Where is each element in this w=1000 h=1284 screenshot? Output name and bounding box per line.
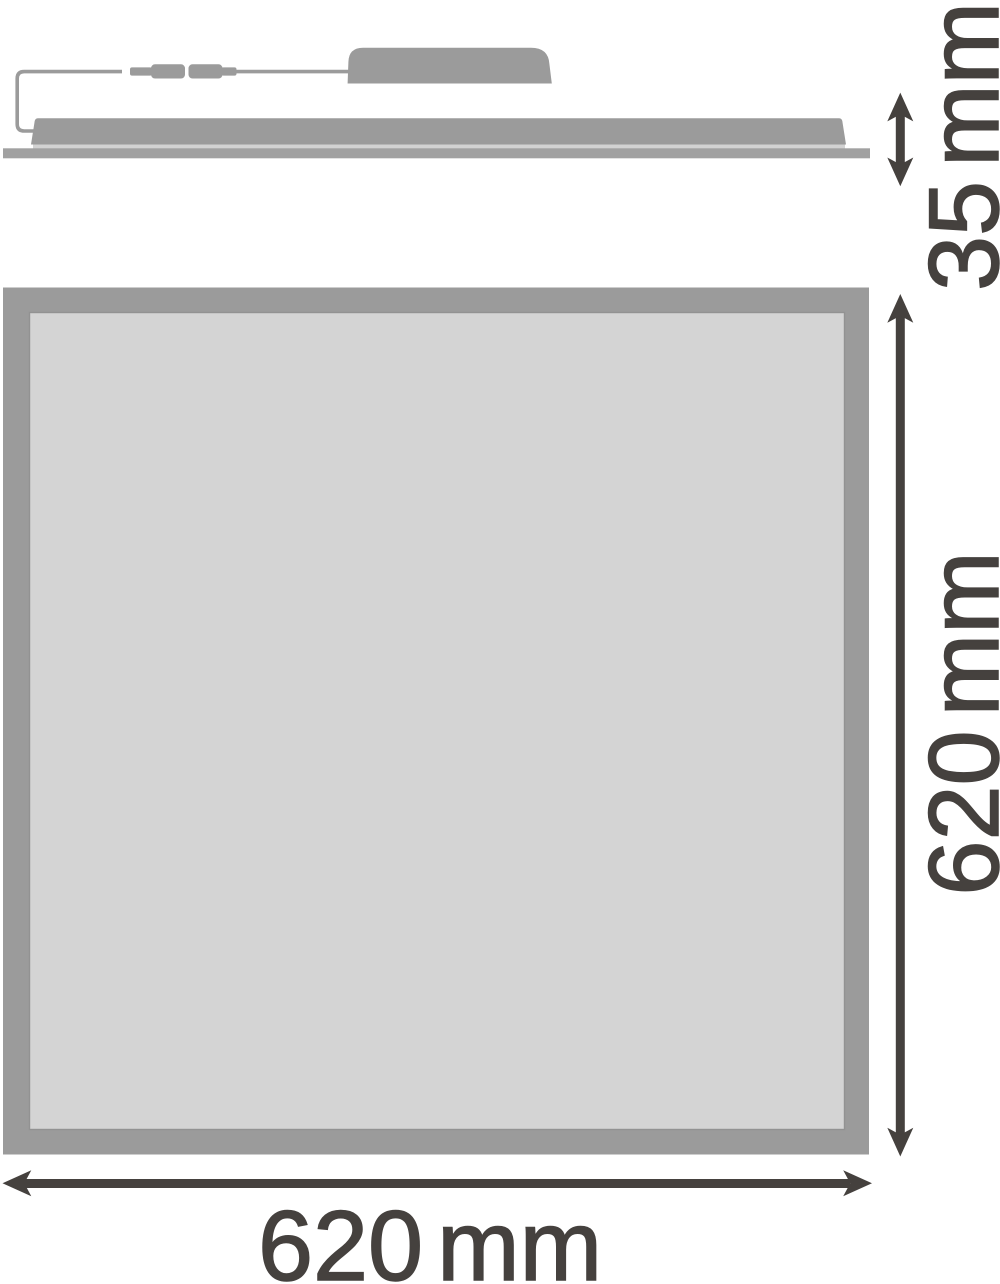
svg-text:620mm: 620mm: [908, 551, 1000, 895]
svg-text:620mm: 620mm: [258, 1190, 602, 1284]
svg-text:35mm: 35mm: [908, 2, 1000, 291]
